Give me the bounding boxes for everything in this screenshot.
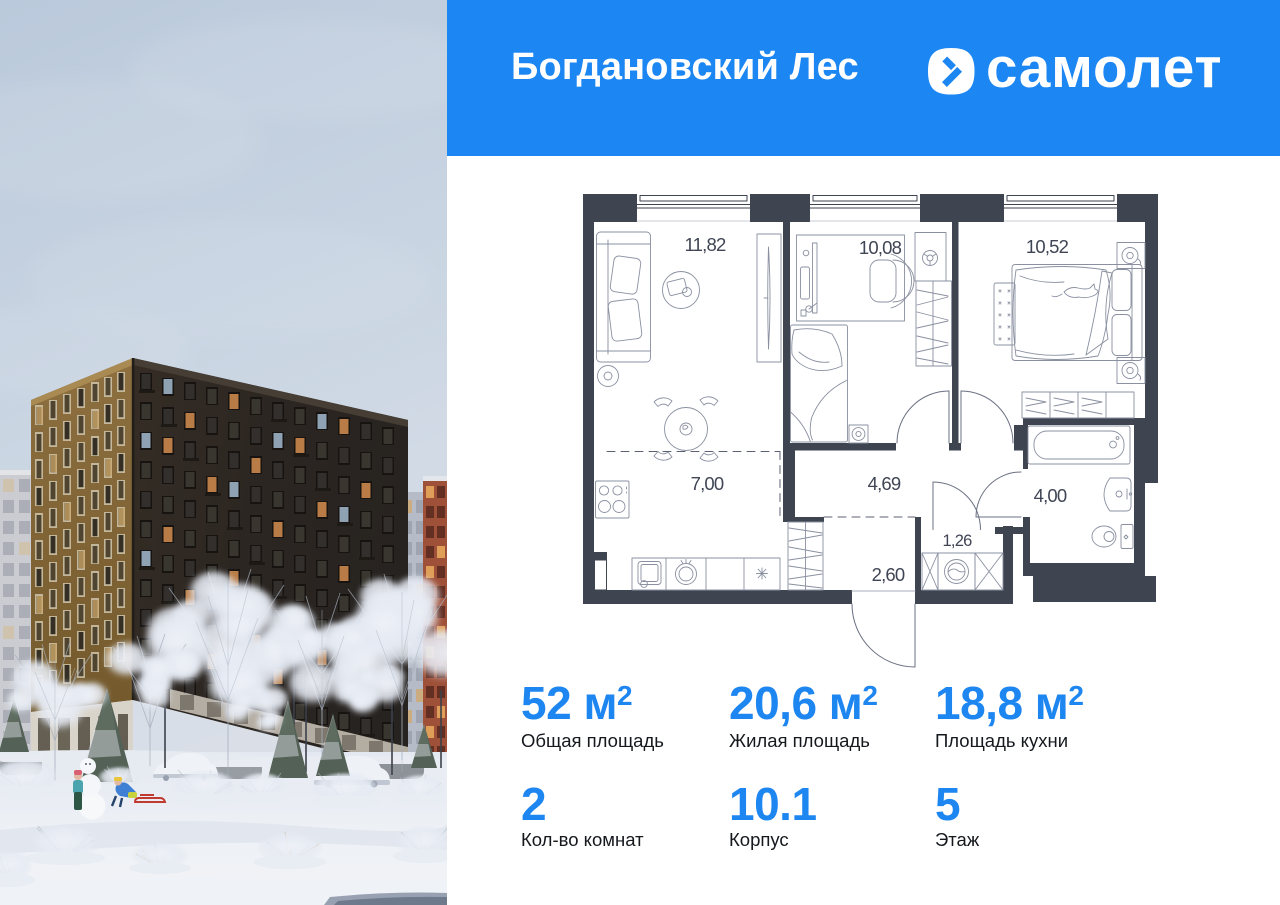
- svg-text:4,69: 4,69: [868, 473, 901, 494]
- svg-text:1,26: 1,26: [943, 532, 973, 550]
- svg-text:7,00: 7,00: [691, 473, 724, 494]
- svg-text:11,82: 11,82: [685, 234, 726, 255]
- svg-text:10,52: 10,52: [1026, 236, 1069, 257]
- svg-text:2,60: 2,60: [872, 564, 905, 585]
- svg-text:10,08: 10,08: [859, 237, 902, 258]
- svg-text:4,00: 4,00: [1034, 485, 1067, 506]
